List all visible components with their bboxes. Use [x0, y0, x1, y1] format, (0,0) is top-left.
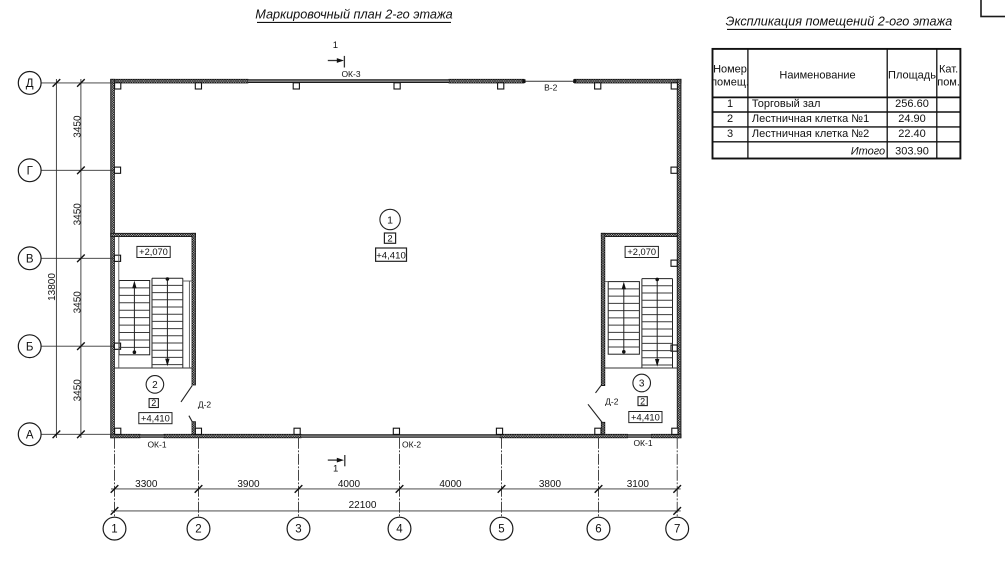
svg-text:13800: 13800 — [47, 273, 58, 301]
svg-text:3450: 3450 — [72, 379, 83, 402]
svg-text:ОК-2: ОК-2 — [402, 440, 421, 450]
svg-text:В: В — [26, 253, 34, 265]
svg-text:3300: 3300 — [135, 479, 158, 490]
svg-text:Г: Г — [27, 165, 34, 177]
svg-text:Площадь: Площадь — [888, 70, 936, 82]
svg-text:+4,410: +4,410 — [141, 413, 170, 423]
svg-text:Торговый зал: Торговый зал — [752, 98, 821, 110]
svg-text:+2,070: +2,070 — [627, 247, 656, 257]
svg-text:3900: 3900 — [237, 479, 260, 490]
svg-text:2: 2 — [195, 524, 201, 536]
svg-text:1: 1 — [387, 214, 393, 226]
svg-text:5: 5 — [498, 524, 504, 536]
svg-text:+4,410: +4,410 — [631, 412, 660, 422]
svg-text:3: 3 — [295, 524, 301, 536]
svg-text:Номер: Номер — [713, 64, 747, 76]
svg-text:помещ.: помещ. — [711, 77, 749, 89]
svg-text:1: 1 — [333, 40, 338, 51]
svg-text:3100: 3100 — [627, 479, 650, 490]
svg-text:ОК-1: ОК-1 — [633, 438, 652, 448]
svg-text:1: 1 — [111, 524, 117, 536]
svg-text:Итого: Итого — [851, 145, 885, 157]
svg-text:+4,410: +4,410 — [376, 250, 406, 261]
svg-text:3800: 3800 — [539, 479, 562, 490]
svg-text:Маркировочный план 2-го этажа: Маркировочный план 2-го этажа — [255, 8, 452, 22]
svg-text:22100: 22100 — [349, 500, 377, 511]
svg-text:3: 3 — [727, 128, 733, 140]
svg-text:4: 4 — [396, 524, 403, 536]
svg-text:Б: Б — [26, 341, 34, 353]
svg-text:3: 3 — [639, 379, 645, 390]
svg-text:Д-2: Д-2 — [198, 399, 212, 409]
svg-text:2: 2 — [727, 113, 733, 125]
svg-text:Д: Д — [26, 78, 34, 90]
svg-text:1: 1 — [333, 463, 338, 474]
svg-text:В-2: В-2 — [544, 83, 558, 93]
svg-text:Наименование: Наименование — [779, 70, 855, 82]
svg-text:256.60: 256.60 — [895, 98, 929, 110]
svg-text:3450: 3450 — [72, 291, 83, 314]
svg-text:2: 2 — [151, 398, 156, 408]
svg-text:Экспликация помещений 2-ого эт: Экспликация помещений 2-ого этажа — [726, 15, 953, 29]
svg-text:Лестничная клетка №2: Лестничная клетка №2 — [752, 128, 869, 140]
svg-text:3450: 3450 — [72, 115, 83, 138]
svg-text:А: А — [26, 429, 34, 441]
svg-text:Лестничная клетка №1: Лестничная клетка №1 — [752, 113, 869, 125]
svg-text:6: 6 — [595, 524, 601, 536]
svg-text:4000: 4000 — [338, 479, 361, 490]
svg-text:24.90: 24.90 — [898, 113, 926, 125]
svg-text:ОК-3: ОК-3 — [341, 69, 360, 79]
svg-text:2: 2 — [640, 396, 645, 406]
svg-text:7: 7 — [674, 524, 680, 536]
svg-text:2: 2 — [152, 380, 158, 391]
svg-text:2: 2 — [387, 234, 392, 245]
svg-text:Кат.: Кат. — [939, 64, 958, 76]
svg-text:303.90: 303.90 — [895, 145, 929, 157]
svg-text:ОК-1: ОК-1 — [147, 440, 166, 450]
svg-text:Д-2: Д-2 — [605, 397, 619, 407]
svg-text:3450: 3450 — [72, 203, 83, 226]
svg-text:пом.: пом. — [937, 77, 960, 89]
svg-text:1: 1 — [727, 98, 733, 110]
svg-text:22.40: 22.40 — [898, 128, 926, 140]
svg-text:+2,070: +2,070 — [139, 247, 168, 257]
svg-text:4000: 4000 — [439, 479, 462, 490]
